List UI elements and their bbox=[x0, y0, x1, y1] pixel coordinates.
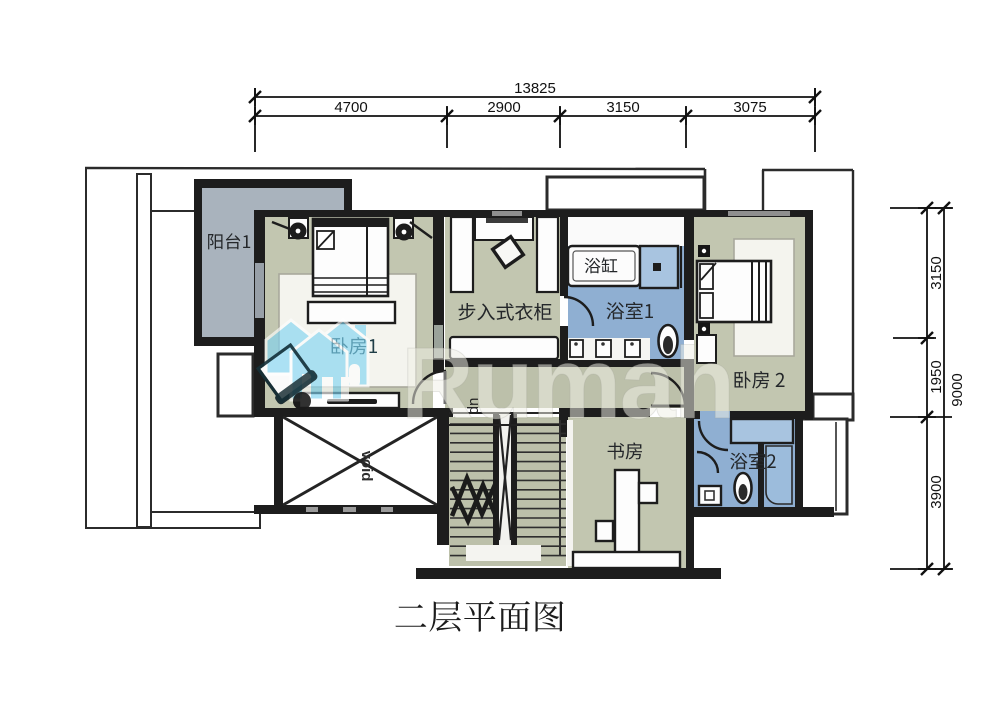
svg-text:13825: 13825 bbox=[514, 80, 556, 97]
svg-text:4700: 4700 bbox=[334, 99, 367, 116]
svg-text:3900: 3900 bbox=[928, 475, 945, 508]
svg-text:3150: 3150 bbox=[606, 99, 639, 116]
svg-text:9000: 9000 bbox=[949, 373, 966, 406]
svg-text:3075: 3075 bbox=[733, 99, 766, 116]
svg-text:1950: 1950 bbox=[928, 360, 945, 393]
svg-text:Rumah: Rumah bbox=[401, 328, 733, 440]
svg-text:2900: 2900 bbox=[487, 99, 520, 116]
svg-text:void: void bbox=[358, 451, 375, 482]
svg-text:3150: 3150 bbox=[928, 256, 945, 289]
